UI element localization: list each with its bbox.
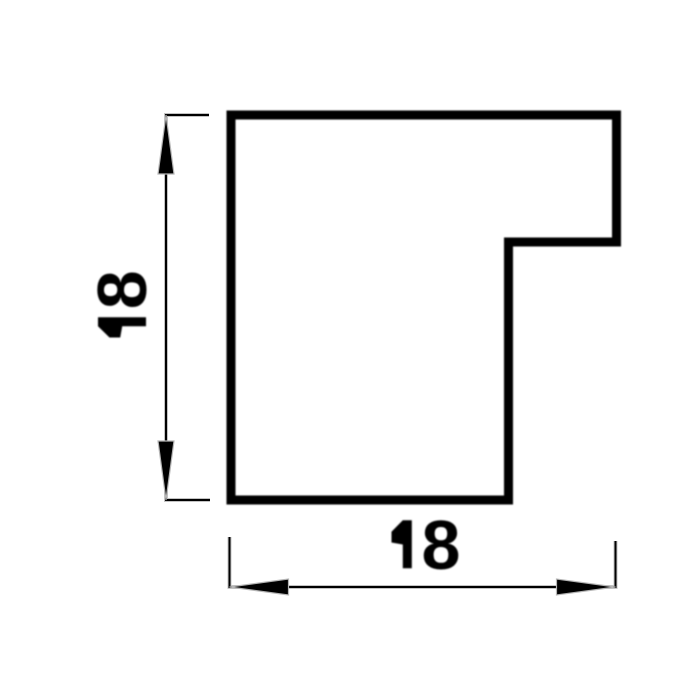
- svg-text:8: 8: [422, 506, 461, 584]
- svg-text:8: 8: [83, 270, 161, 309]
